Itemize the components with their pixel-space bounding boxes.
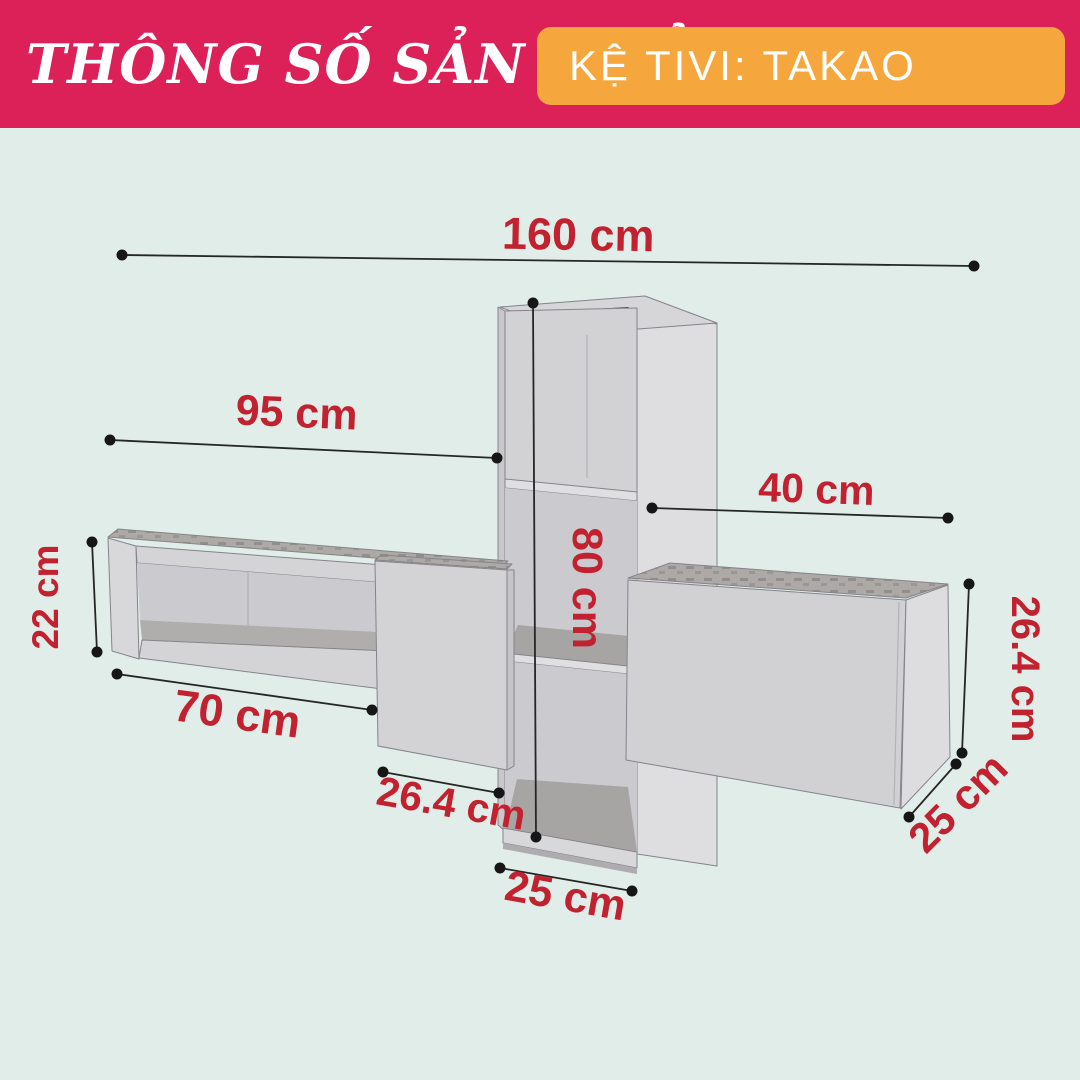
center-door-cabinet (375, 555, 514, 770)
dim-label-total-width: 160 cm (502, 208, 655, 262)
center-door-right-edge (507, 570, 514, 770)
dim-label-left-shelf-width: 95 cm (235, 386, 359, 439)
diagram-area: 160 cm 95 cm 40 cm 22 cm 80 cm (0, 128, 1080, 1080)
dim-label-tower-width: 25 cm (501, 862, 629, 930)
product-badge-label: KỆ TIVI: TAKAO (537, 42, 917, 90)
dim-right-box-height: 26.4 cm (957, 579, 1048, 759)
dim-label-right-gap-width: 40 cm (758, 464, 876, 514)
dim-label-right-box-height: 26.4 cm (1003, 596, 1047, 743)
center-door-front-face (375, 561, 507, 770)
dim-left-shelf-width: 95 cm (105, 386, 503, 463)
dim-tower-width: 25 cm (495, 862, 638, 930)
furniture-diagram: 160 cm 95 cm 40 cm 22 cm 80 cm (0, 128, 1080, 1080)
shelf-left-end-panel (108, 538, 139, 659)
product-badge: KỆ TIVI: TAKAO (537, 27, 1065, 105)
dim-label-left-shelf-height: 22 cm (25, 545, 66, 650)
dim-total-width: 160 cm (117, 208, 980, 272)
dim-label-tower-height: 80 cm (563, 527, 611, 649)
header-banner: THÔNG SỐ SẢN PHẨM KỆ TIVI: TAKAO (0, 0, 1080, 128)
right-box-side-face (901, 585, 950, 809)
dim-left-shelf-height: 22 cm (25, 537, 103, 658)
dim-label-left-bottom-width: 70 cm (170, 680, 303, 748)
